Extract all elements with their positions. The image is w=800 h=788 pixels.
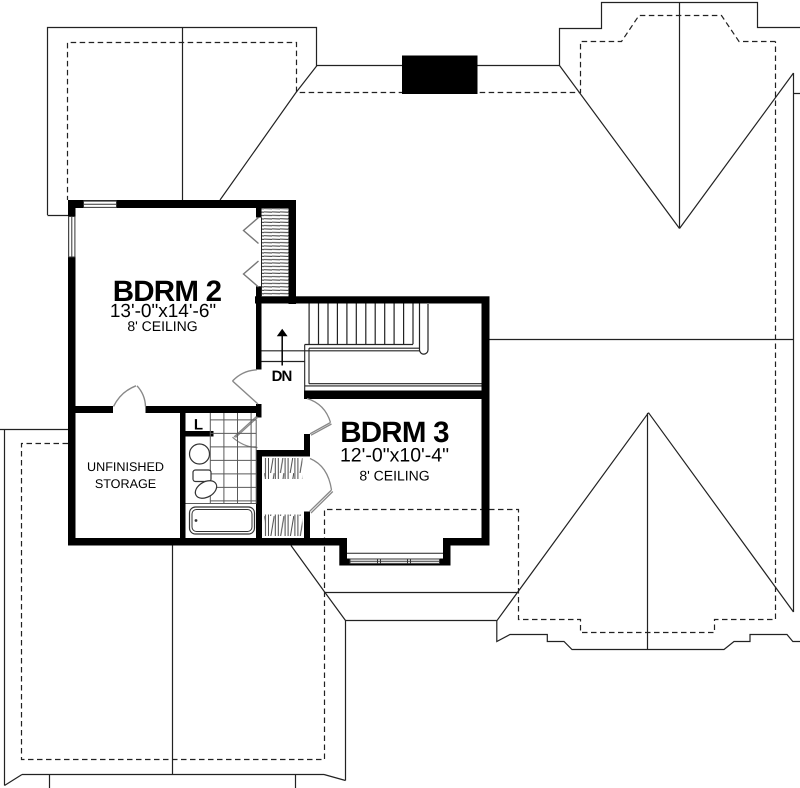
- svg-text:12'-0"x10'-4": 12'-0"x10'-4": [340, 445, 449, 467]
- svg-text:8' CEILING: 8' CEILING: [127, 318, 197, 334]
- svg-text:L: L: [194, 417, 203, 434]
- svg-text:UNFINISHED: UNFINISHED: [87, 460, 164, 474]
- svg-text:DN: DN: [272, 368, 292, 385]
- svg-text:STORAGE: STORAGE: [95, 477, 156, 491]
- svg-text:8' CEILING: 8' CEILING: [359, 468, 429, 484]
